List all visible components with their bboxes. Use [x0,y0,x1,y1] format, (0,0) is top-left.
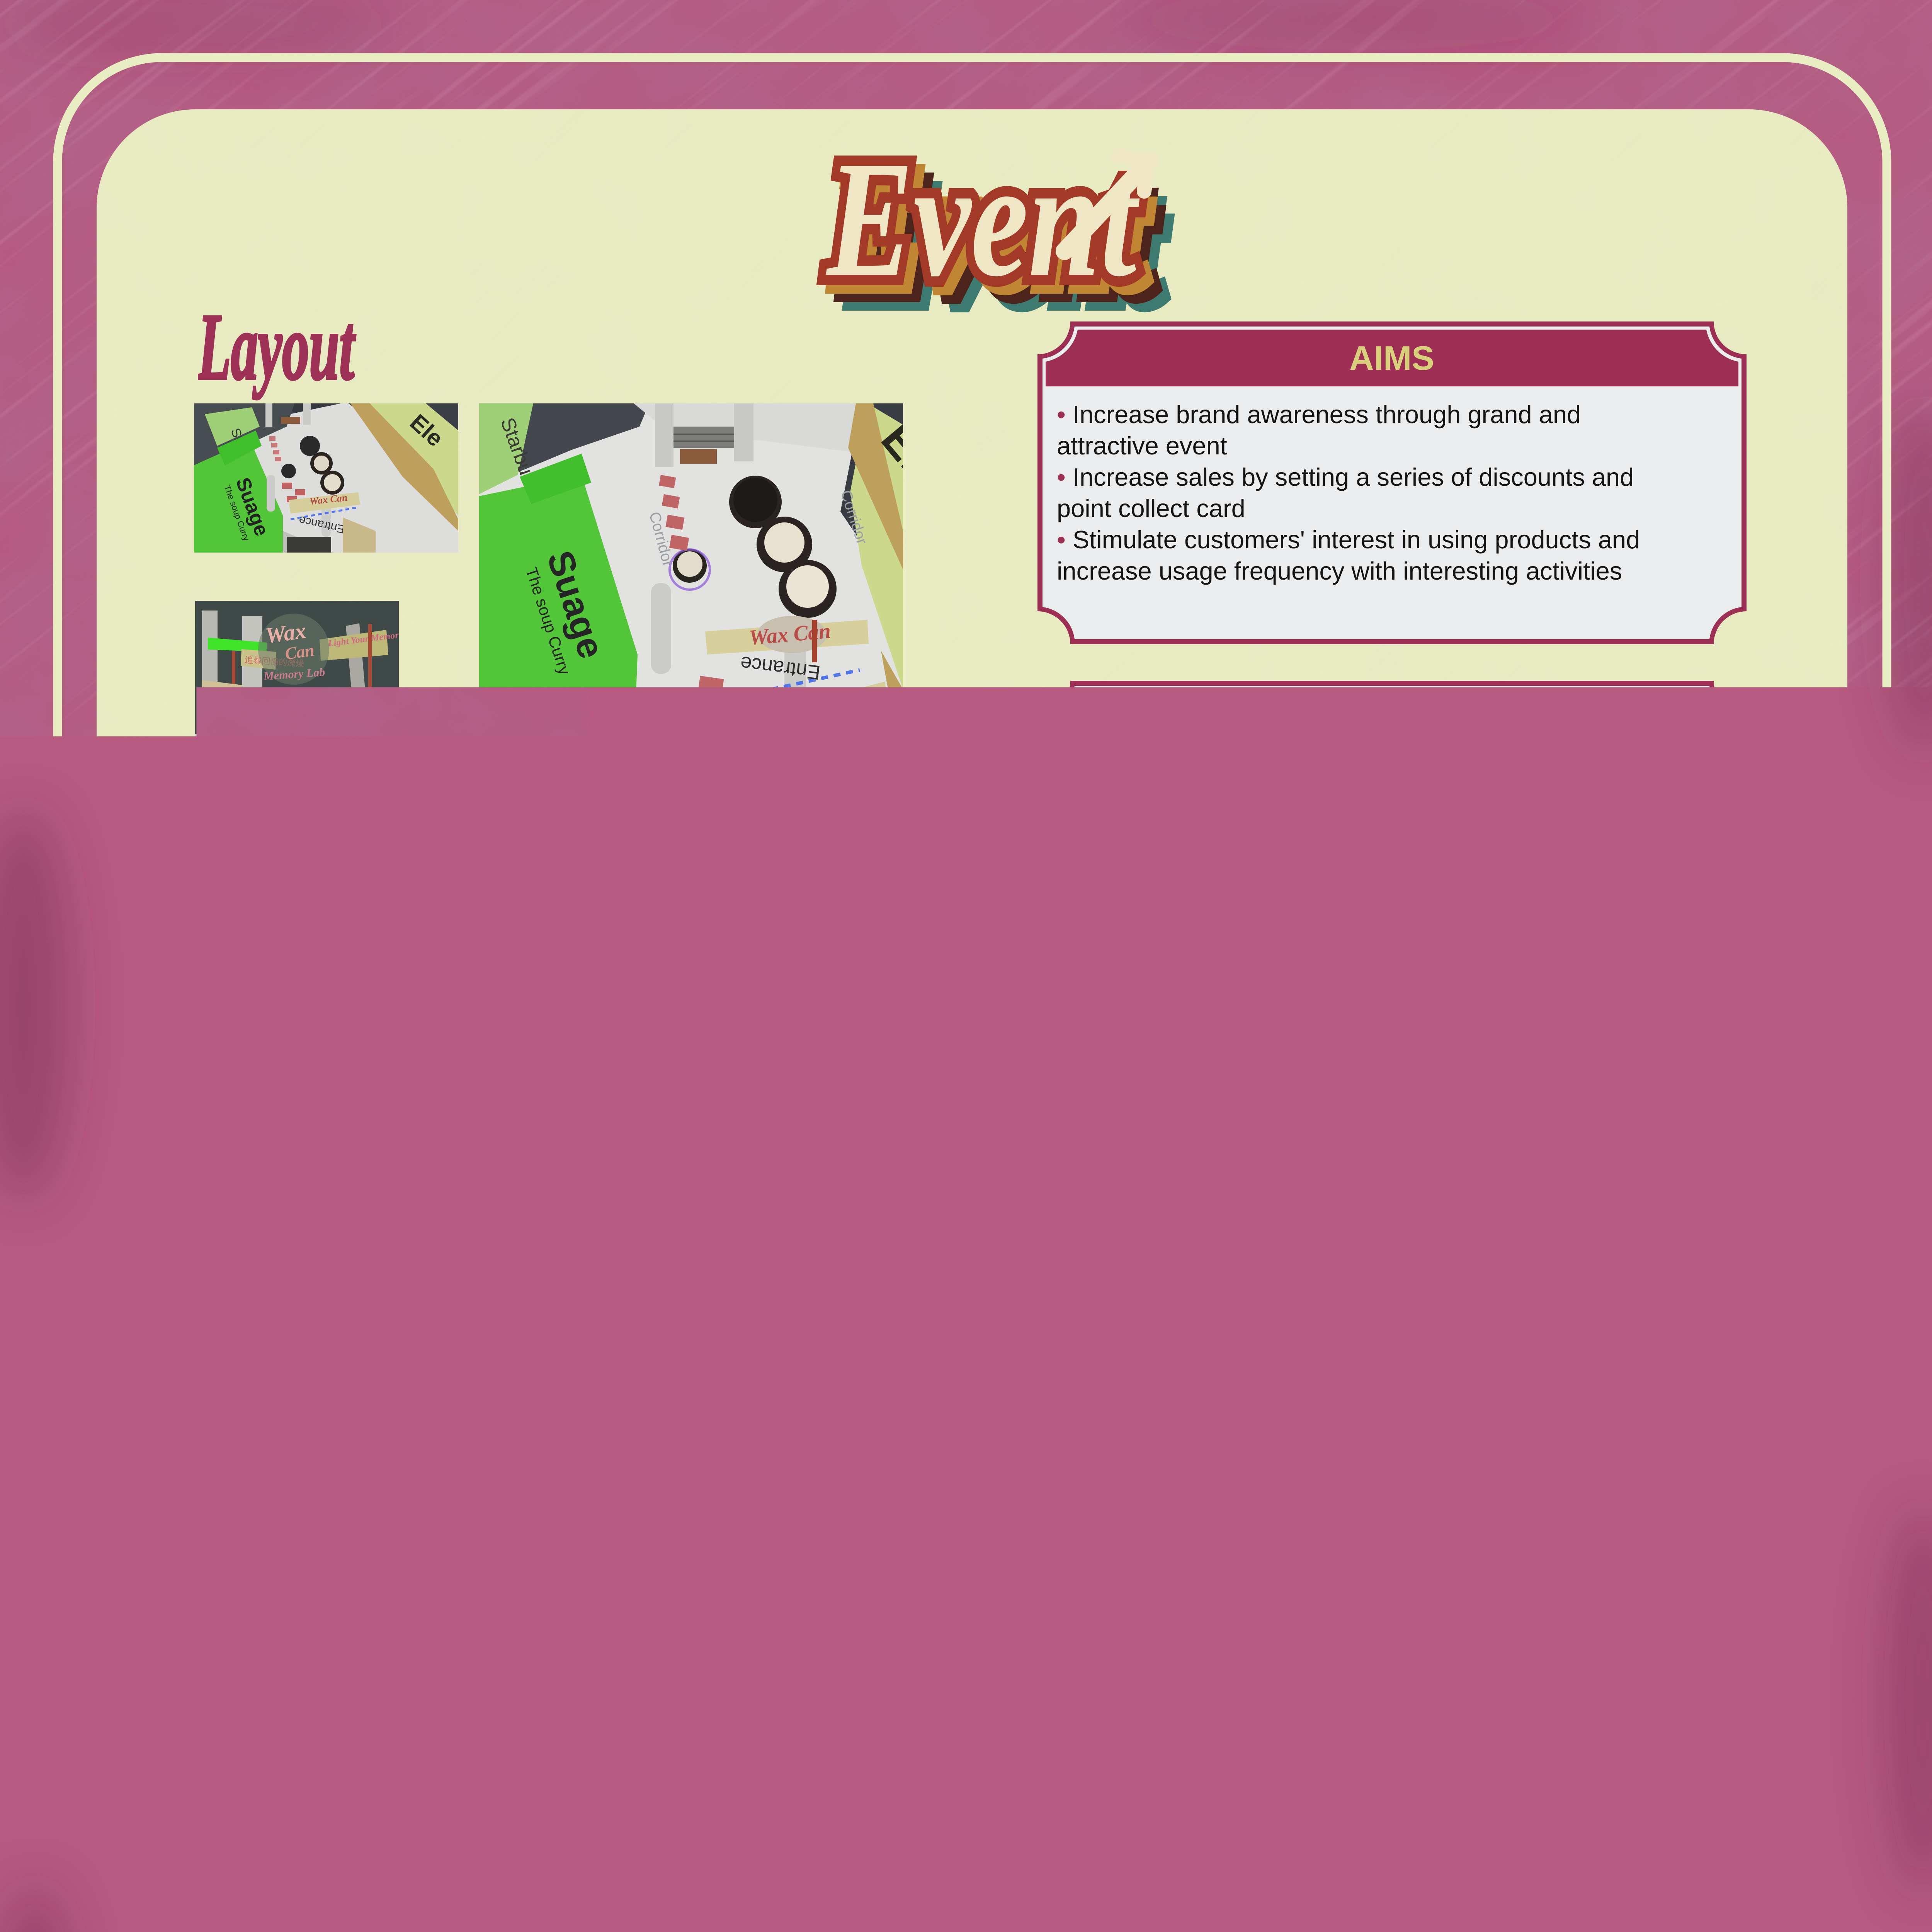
svg-text:Entrance: Entrance [310,1576,346,1585]
svg-text:The Wax Can: The Wax Can [243,1526,296,1536]
svg-text:Shelf: Shelf [310,1520,330,1529]
svg-text:Billboard: Billboard [243,1591,279,1601]
svg-text:Temporary: Temporary [243,1602,286,1612]
svg-text:Visitor: Visitor [310,1500,336,1510]
svg-text:Write Your Feeling: Write Your Feeling [1386,1433,1459,1443]
svg-text:Exit: Exit [866,843,881,868]
svg-text:Model: Model [243,1536,267,1546]
svg-text:c. Experimental area: c. Experimental area [828,1683,1269,1755]
svg-text:Machine: Machine [310,1557,344,1567]
svg-text:Memory: Memory [243,1551,276,1560]
svg-text:House: House [243,1560,269,1570]
svg-text:Display: Display [243,1577,273,1586]
svg-text:b.Memory Mechine: b.Memory Mechine [182,1685,557,1757]
svg-text:Wax: Wax [1123,1487,1151,1506]
svg-text:Floor Plan: Floor Plan [189,1020,430,1109]
svg-text:a. Memory House: a. Memory House [608,1034,995,1116]
svg-text:Product-: Product- [310,1511,344,1520]
svg-text:d. Photo Spot: d. Photo Spot [1307,1679,1579,1751]
svg-text:Cashire: Cashire [243,1514,274,1524]
svg-text:EVENT DETAILS: EVENT DETAILS [1259,698,1525,736]
svg-text:Display/: Display/ [310,1529,342,1539]
svg-text:Banner: Banner [310,1567,339,1577]
svg-text:Exit: Exit [380,914,405,931]
svg-text:Can: Can [284,641,316,663]
svg-text:W: W [1364,1520,1378,1535]
svg-text:Fence: Fence [243,1611,267,1621]
svg-text:Staff: Staff [243,1501,262,1510]
svg-text:Exit: Exit [874,904,889,929]
svg-text:Exit: Exit [389,1447,417,1466]
svg-text:Layout: Layout [198,305,356,399]
svg-text:AIMS: AIMS [1349,339,1434,377]
svg-text:Goods: Goods [310,1538,337,1548]
svg-text:Memory: Memory [310,1548,342,1558]
svg-text:Pillar: Pillar [310,1593,330,1603]
